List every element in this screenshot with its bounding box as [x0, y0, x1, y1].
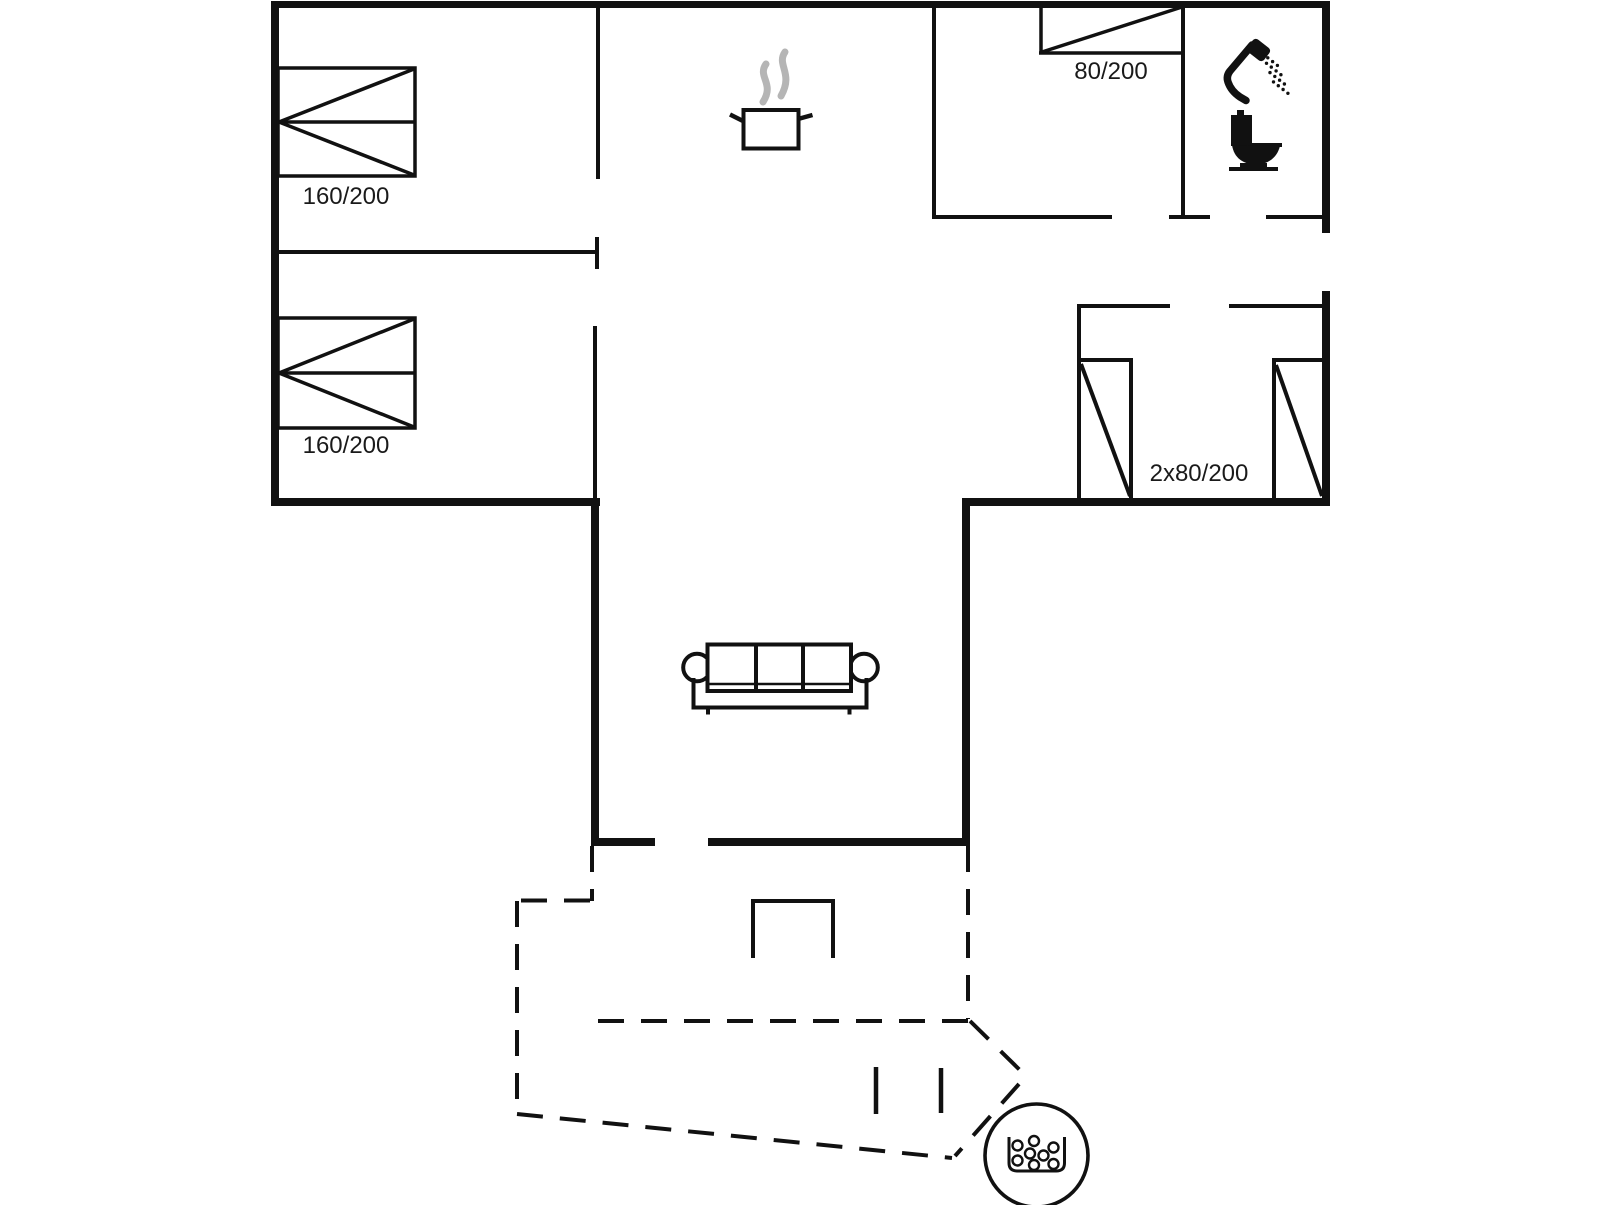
svg-text:80/200: 80/200: [1074, 58, 1147, 85]
svg-text:2x80/200: 2x80/200: [1150, 460, 1249, 487]
svg-text:160/200: 160/200: [303, 432, 390, 459]
svg-text:160/200: 160/200: [303, 183, 390, 210]
